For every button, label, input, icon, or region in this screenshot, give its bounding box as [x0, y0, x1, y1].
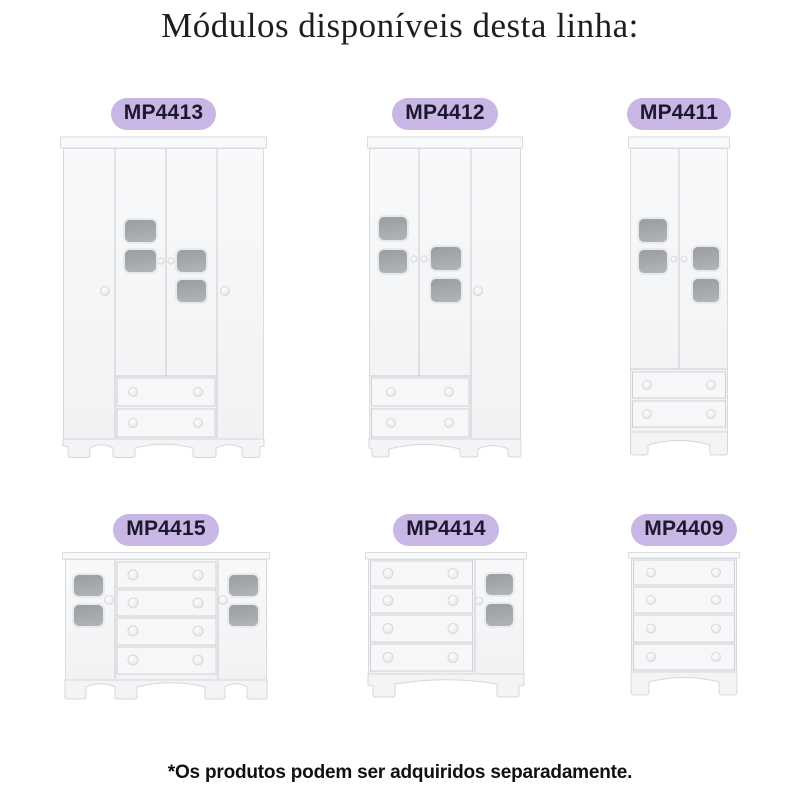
chest-4-drawers-illustration — [628, 552, 740, 697]
product-lineup-image: Módulos disponíveis desta linha: MP4413 — [0, 0, 800, 800]
module-code-badge: MP4409 — [631, 514, 736, 546]
dresser-2-doors-illustration — [62, 552, 270, 702]
page-title: Módulos disponíveis desta linha: — [0, 6, 800, 46]
module-mp4411: MP4411 — [628, 98, 730, 457]
wardrobe-4-doors-illustration — [60, 136, 267, 460]
module-mp4412: MP4412 — [367, 98, 523, 460]
wardrobe-3-doors-illustration — [367, 136, 523, 460]
module-mp4409: MP4409 — [628, 514, 740, 697]
module-code-badge: MP4413 — [111, 98, 216, 130]
module-code-badge: MP4412 — [392, 98, 497, 130]
module-mp4414: MP4414 — [365, 514, 527, 699]
dresser-1-door-illustration — [365, 552, 527, 699]
module-code-badge: MP4411 — [627, 98, 731, 130]
module-code-badge: MP4415 — [113, 514, 218, 546]
separate-purchase-footnote: *Os produtos podem ser adquiridos separa… — [0, 762, 800, 784]
wardrobe-2-doors-illustration — [628, 136, 730, 457]
module-code-badge: MP4414 — [393, 514, 498, 546]
module-mp4415: MP4415 — [62, 514, 270, 702]
module-mp4413: MP4413 — [60, 98, 267, 460]
